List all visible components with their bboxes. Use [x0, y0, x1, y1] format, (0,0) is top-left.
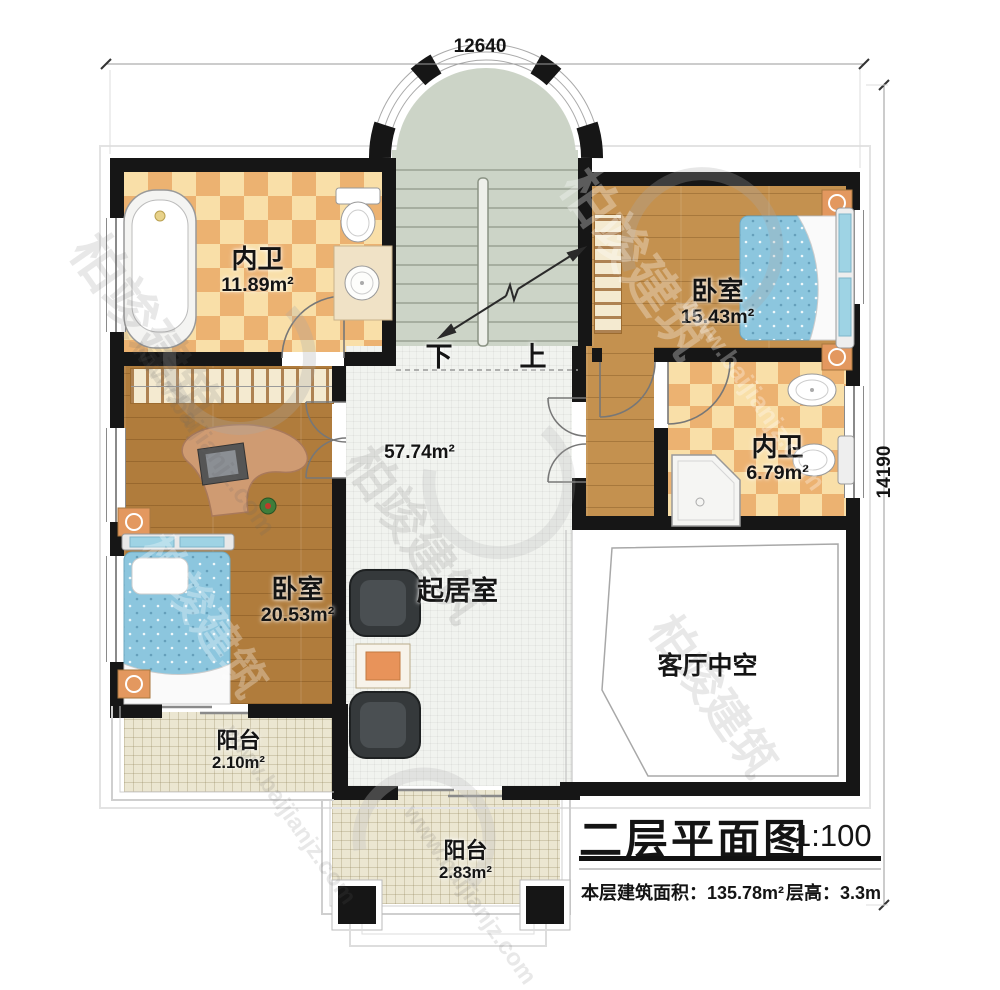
- room-label-bathroom-2: 内卫 6.79m²: [695, 433, 860, 484]
- floor-area-text: 本层建筑面积：135.78m²: [581, 879, 784, 905]
- room-name: 内卫: [751, 432, 803, 462]
- plan-scale: 1:100: [794, 818, 872, 854]
- column: [338, 886, 376, 924]
- room-area: 2.83m²: [383, 864, 548, 883]
- wardrobe-bedroom-1: [130, 368, 334, 404]
- room-name: 阳台: [216, 728, 260, 753]
- room-label-bedroom-2: 卧室 15.43m²: [635, 277, 800, 328]
- wall: [382, 158, 396, 366]
- dimension-top: 12640: [430, 36, 530, 58]
- wall: [654, 348, 860, 362]
- wall: [846, 302, 860, 388]
- stairs-up-text: 上: [520, 342, 547, 372]
- floor-plan-canvas: 内卫 11.89m² 卧室 15.43m² 内卫 6.79m² 卧室 20.53…: [0, 0, 1000, 990]
- room-name: 内卫: [231, 244, 283, 274]
- wall: [110, 158, 396, 172]
- room-name: 阳台: [443, 838, 487, 863]
- room-name: 卧室: [691, 276, 743, 306]
- window: [106, 428, 126, 522]
- room-name: 起居室: [417, 576, 498, 606]
- window: [106, 218, 126, 332]
- room-label-balcony-2: 阳台 2.83m²: [383, 839, 548, 882]
- wall: [110, 704, 162, 718]
- floor-hallway: [586, 346, 654, 530]
- living-room-area-label: 57.74m²: [337, 442, 502, 463]
- void-label: 客厅中空: [615, 652, 800, 680]
- bay-window: [372, 44, 600, 158]
- room-label-balcony-1: 阳台 2.10m²: [156, 729, 321, 772]
- wall: [344, 352, 382, 366]
- room-area: 6.79m²: [695, 462, 860, 484]
- wall: [110, 330, 124, 430]
- stairs-down-label: 下: [423, 342, 455, 372]
- wall: [560, 782, 860, 796]
- room-label-bathroom-1: 内卫 11.89m²: [175, 245, 340, 296]
- floor-living-room: [346, 346, 572, 786]
- window: [106, 556, 126, 662]
- wall: [654, 428, 668, 530]
- wall: [110, 352, 282, 366]
- floor-stairwell: [392, 150, 578, 368]
- room-area: 11.89m²: [175, 274, 340, 296]
- wardrobe-bedroom-2: [594, 214, 622, 334]
- wall: [572, 516, 860, 530]
- wall: [332, 786, 398, 800]
- wall: [572, 346, 586, 402]
- room-area: 57.74m²: [384, 442, 455, 463]
- title-rule-thin: [579, 868, 881, 870]
- room-area: 2.10m²: [156, 754, 321, 773]
- stairs-down-text: 下: [426, 342, 453, 372]
- floor-bedroom-1: [124, 366, 332, 704]
- wall: [110, 520, 124, 560]
- stairs-up-label: 上: [517, 342, 549, 372]
- wall: [592, 172, 860, 186]
- room-name: 卧室: [271, 574, 323, 604]
- dimension-right: 14190: [874, 410, 894, 534]
- wall: [578, 158, 592, 346]
- floor-height-text: 层高：3.3m: [786, 879, 881, 905]
- column: [526, 886, 564, 924]
- room-area: 20.53m²: [215, 604, 380, 626]
- living-room-name-label: 起居室: [375, 576, 540, 606]
- room-label-bedroom-1: 卧室 20.53m²: [215, 575, 380, 626]
- wall: [846, 496, 860, 796]
- title-info-row: 本层建筑面积：135.78m² 层高：3.3m: [581, 879, 881, 905]
- room-area: 15.43m²: [635, 306, 800, 328]
- wall: [592, 348, 602, 362]
- wall: [110, 158, 124, 220]
- room-name: 客厅中空: [657, 652, 757, 680]
- title-rule-thick: [579, 856, 881, 861]
- window: [844, 210, 864, 304]
- wall: [332, 366, 346, 402]
